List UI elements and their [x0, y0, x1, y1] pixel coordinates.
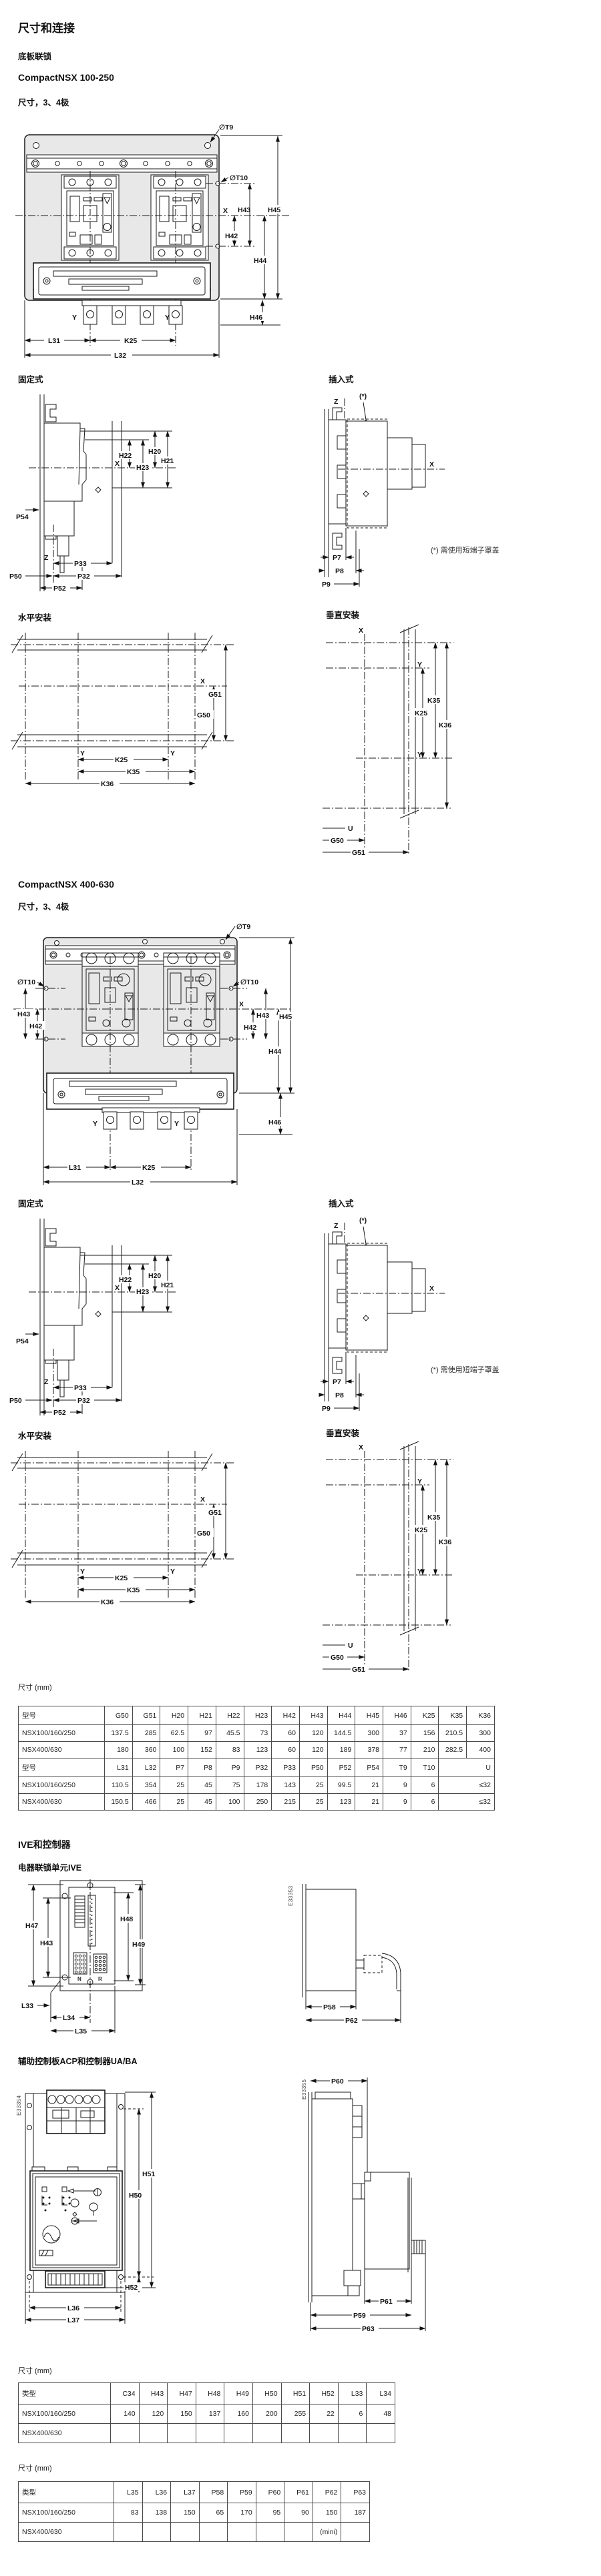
- table-cell: 65: [199, 2503, 228, 2523]
- axis-label-x: X: [359, 627, 363, 635]
- table-cell: NSX400/630: [19, 2424, 111, 2443]
- dim-label-u: U: [348, 825, 353, 833]
- dim-label-k25: K25: [115, 756, 128, 764]
- dim-label-p33: P33: [74, 1384, 87, 1392]
- interlock-plate: [33, 263, 210, 299]
- table-cell: [281, 2424, 310, 2443]
- axis-label-y-bottom: Y: [417, 751, 422, 759]
- dim-label-k25: K25: [115, 1574, 128, 1582]
- table-cell: [171, 2523, 200, 2542]
- table-cell: 99.5: [327, 1777, 355, 1794]
- table-cell: 62.5: [160, 1725, 188, 1742]
- dim-label-h43: H43: [40, 1939, 53, 1947]
- figure-nsx400-plugin-side-view: Z (*) X P7 P8 P9: [319, 1213, 601, 1420]
- dim-label-k35: K35: [427, 697, 440, 705]
- table-header-cell: H20: [160, 1706, 188, 1725]
- note-marker-star: (*): [359, 1217, 367, 1225]
- dim-label-g50: G50: [331, 1654, 344, 1662]
- dim-label-h43: H43: [238, 206, 250, 214]
- table-cell: 6: [411, 1777, 439, 1794]
- poles-label-2: 尺寸，3、4极: [18, 900, 69, 912]
- table-row: NSX100/160/250110.53542545751781432599.5…: [19, 1777, 495, 1794]
- table-cell: [341, 2523, 370, 2542]
- table-cell: 210.5: [439, 1725, 467, 1742]
- table-header-cell: H45: [355, 1706, 383, 1725]
- table-header-cell: P62: [313, 2482, 341, 2503]
- dim-label-h51: H51: [142, 2170, 155, 2178]
- axis-label-x: X: [115, 1284, 120, 1292]
- dim-label-h45: H45: [279, 1013, 292, 1021]
- ive-section-title: IVE和控制器: [18, 1838, 71, 1851]
- table-cell: 120: [139, 2404, 168, 2424]
- table-cell: 140: [111, 2404, 140, 2424]
- fixed-type-label-2: 固定式: [18, 1197, 43, 1209]
- table-cell: 110.5: [105, 1777, 133, 1794]
- table-cell: 37: [383, 1725, 411, 1742]
- dim-label-p32: P32: [77, 573, 90, 581]
- table-cell: ≤32: [439, 1777, 495, 1794]
- figure-horizontal-mounting-2: X G51 G50 Y Y K25 K35 K36: [5, 1447, 286, 1611]
- dim-label-t10-right: ∅T10: [240, 978, 258, 986]
- dim-label-p32: P32: [77, 1397, 90, 1405]
- axis-label-y-top: Y: [417, 661, 422, 669]
- table-row: NSX100/160/25083138150651709590150187: [19, 2503, 370, 2523]
- axis-label-x: X: [223, 207, 228, 215]
- table-header-cell: P52: [327, 1758, 355, 1777]
- table-header-cell: P33: [272, 1758, 300, 1777]
- axis-label-y-bottom: Y: [417, 1568, 422, 1576]
- figure-vertical-mounting-2: X Y Y K35 K25 K36 U G50 G51: [323, 1436, 476, 1676]
- table-cell: [142, 2523, 171, 2542]
- table-cell: 25: [160, 1794, 188, 1811]
- table-cell: [228, 2523, 256, 2542]
- dim-label-p58: P58: [323, 2003, 336, 2011]
- dim-label-g51: G51: [352, 849, 365, 857]
- table-cell: [367, 2424, 395, 2443]
- table-header-cell: H43: [299, 1706, 327, 1725]
- table-cell: 25: [160, 1777, 188, 1794]
- table-cell: 250: [244, 1794, 272, 1811]
- table-cell: 100: [160, 1742, 188, 1758]
- table-cell: 6: [411, 1794, 439, 1811]
- dim-label-p9: P9: [322, 581, 331, 589]
- figure-horizontal-mounting-1: X G51 G50 Y Y K25 K35 K36: [5, 629, 286, 793]
- table-cell: 360: [132, 1742, 160, 1758]
- table-cell: [338, 2424, 367, 2443]
- dim-label-k25: K25: [415, 1526, 427, 1534]
- table-header-cell: P8: [188, 1758, 216, 1777]
- dim-label-h50: H50: [129, 2192, 142, 2200]
- table-cell: 137: [196, 2404, 224, 2424]
- axis-label-x: X: [359, 1443, 363, 1452]
- dim-label-t9: ∅T9: [219, 123, 233, 131]
- table-header-cell: L32: [132, 1758, 160, 1777]
- table-row: NSX400/630(mini): [19, 2523, 370, 2542]
- dim-label-h52: H52: [125, 2284, 138, 2292]
- table-cell: NSX400/630: [19, 2523, 114, 2542]
- table-cell: 178: [244, 1777, 272, 1794]
- table-header-cell: T9: [383, 1758, 411, 1777]
- dim-label-h21: H21: [161, 1281, 174, 1289]
- table-cell: 73: [244, 1725, 272, 1742]
- dim-label-u: U: [348, 1642, 353, 1650]
- table-header-cell: K36: [467, 1706, 495, 1725]
- table-cell: 21: [355, 1777, 383, 1794]
- dim-label-h45: H45: [268, 206, 280, 214]
- dim-label-k35: K35: [127, 1586, 140, 1594]
- table-cell: 282.5: [439, 1742, 467, 1758]
- table-cell: 9: [383, 1794, 411, 1811]
- dim-label-k36: K36: [439, 1538, 451, 1546]
- table-cell: 200: [252, 2404, 281, 2424]
- dim-label-l31: L31: [48, 337, 60, 345]
- figure-ref-ive: E33353: [288, 1885, 294, 1906]
- table-cell: (mini): [313, 2523, 341, 2542]
- dim-label-g50: G50: [197, 711, 210, 719]
- dim-label-h48: H48: [120, 1915, 133, 1923]
- table-cell: 100: [216, 1794, 244, 1811]
- axis-label-z: Z: [44, 1378, 49, 1386]
- fixed-type-label-1: 固定式: [18, 372, 43, 385]
- plugin-note-2: (*) 需使用短端子罩盖: [431, 1364, 499, 1375]
- table-cell: NSX400/630: [19, 1742, 105, 1758]
- table-header-cell: L31: [105, 1758, 133, 1777]
- axis-label-y-top: Y: [417, 1478, 422, 1486]
- plugin-type-label-1: 插入式: [329, 372, 354, 385]
- table-row: NSX100/160/25014012015013716020025522648: [19, 2404, 395, 2424]
- dim-label-p60: P60: [331, 2077, 344, 2085]
- dim-label-t10: ∅T10: [230, 174, 248, 182]
- figure-nsx100-plugin-side-view: Z (*) X P7 P8 P9: [319, 389, 601, 596]
- table-cell: 25: [299, 1777, 327, 1794]
- dim-label-h46: H46: [250, 314, 262, 322]
- table-header-cell: K25: [411, 1706, 439, 1725]
- table-cell: 75: [216, 1777, 244, 1794]
- dim-label-g51: G51: [208, 691, 222, 699]
- table-cell: [114, 2523, 143, 2542]
- table-cell: 150: [313, 2503, 341, 2523]
- table-header-row: 类型L35L36L37P58P59P60P61P62P63: [19, 2482, 370, 2503]
- dim-label-p9: P9: [322, 1405, 331, 1413]
- dim-label-p8: P8: [335, 1391, 344, 1399]
- table-header-cell: P32: [244, 1758, 272, 1777]
- dim-label-h43-right: H43: [256, 1012, 269, 1020]
- dim-label-k25: K25: [415, 709, 427, 717]
- table-header-cell: H43: [139, 2383, 168, 2404]
- table-cell: [196, 2424, 224, 2443]
- figure-acp-side-view: P60 P61 P59 P63: [297, 2072, 444, 2339]
- table-cell: 150: [168, 2404, 196, 2424]
- dim-label-h43-left: H43: [17, 1010, 30, 1018]
- table-cell: 156: [411, 1725, 439, 1742]
- table-header-cell: H23: [244, 1706, 272, 1725]
- table-header-cell: P9: [216, 1758, 244, 1777]
- axis-label-y-left: Y: [93, 1120, 97, 1128]
- axis-label-x: X: [115, 460, 120, 468]
- table-header-cell: H47: [168, 2383, 196, 2404]
- dim-label-h49: H49: [132, 1941, 145, 1949]
- figure-nsx100-fixed-side-view: H22 H20 H23 H21 X P54 Z P33 P32 P50 P52: [5, 391, 192, 599]
- figure-ive-side-view: P58 P62: [297, 1884, 417, 2051]
- table-cell: 354: [132, 1777, 160, 1794]
- table-header-cell: H48: [196, 2383, 224, 2404]
- dim-label-p54: P54: [16, 513, 29, 521]
- table-header-cell: L35: [114, 2482, 143, 2503]
- axis-label-x: X: [429, 1285, 434, 1293]
- table-cell: 95: [256, 2503, 284, 2523]
- dim-label-k35: K35: [427, 1514, 440, 1522]
- dimension-table-acp-1: 类型C34H43H47H48H49H50H51H52L33L34NSX100/1…: [18, 2382, 395, 2443]
- table-cell: 45: [188, 1794, 216, 1811]
- table-header-cell: P7: [160, 1758, 188, 1777]
- dim-label-h23: H23: [136, 1288, 149, 1296]
- dim-label-k36: K36: [101, 1598, 114, 1606]
- table-cell: 83: [114, 2503, 143, 2523]
- table-cell: 138: [142, 2503, 171, 2523]
- table-cell: 180: [105, 1742, 133, 1758]
- table-header-cell: C34: [111, 2383, 140, 2404]
- dim-label-g51: G51: [208, 1509, 222, 1517]
- dim-label-h42: H42: [225, 232, 238, 240]
- table-cell: [224, 2424, 253, 2443]
- table-cell: NSX400/630: [19, 1794, 105, 1811]
- table-header-cell: P50: [299, 1758, 327, 1777]
- axis-label-x: X: [200, 1496, 205, 1504]
- table-cell: [284, 2523, 313, 2542]
- dim-label-k35: K35: [127, 768, 140, 776]
- table-cell: [111, 2424, 140, 2443]
- table-cell: 77: [383, 1742, 411, 1758]
- acp-table1-caption: 尺寸 (mm): [18, 2365, 52, 2376]
- table-cell: [310, 2424, 339, 2443]
- acp-section-title: 辅助控制板ACP和控制器UA/BA: [18, 2054, 137, 2067]
- poles-label-1: 尺寸，3、4极: [18, 95, 69, 108]
- table-cell: 160: [224, 2404, 253, 2424]
- dim-label-p8: P8: [335, 567, 344, 575]
- product-title-nsx100: CompactNSX 100-250: [18, 72, 114, 83]
- dim-label-p52: P52: [53, 585, 66, 593]
- table-cell: 48: [367, 2404, 395, 2424]
- table-header-cell: P58: [199, 2482, 228, 2503]
- dim-label-k25: K25: [142, 1164, 155, 1172]
- axis-label-y-right: Y: [174, 1120, 179, 1128]
- table-cell: 45: [188, 1777, 216, 1794]
- table-header-cell: G51: [132, 1706, 160, 1725]
- table-cell: 215: [272, 1794, 300, 1811]
- dim-label-g50: G50: [331, 837, 344, 845]
- table-cell: 123: [244, 1742, 272, 1758]
- table-header-cell: L36: [142, 2482, 171, 2503]
- connector-label-n: N: [77, 1976, 81, 1982]
- dim-label-l34: L34: [63, 2014, 75, 2022]
- table-header-cell: 型号: [19, 1758, 105, 1777]
- dim-label-l31: L31: [69, 1164, 81, 1172]
- table-header-cell: T10: [411, 1758, 439, 1777]
- dim-label-p7: P7: [333, 554, 341, 562]
- table-cell: 255: [281, 2404, 310, 2424]
- table-cell: 9: [383, 1777, 411, 1794]
- table-header-cell: L34: [367, 2383, 395, 2404]
- figure-acp-front-view: H51 H50 H52 L36 L37: [10, 2082, 197, 2336]
- table-header-cell: 类型: [19, 2383, 111, 2404]
- axis-label-y-left: Y: [80, 749, 85, 757]
- axis-label-z: Z: [334, 398, 339, 406]
- dim-label-k36: K36: [439, 721, 451, 729]
- table-cell: [256, 2523, 284, 2542]
- table-cell: 6: [338, 2404, 367, 2424]
- table-header-cell: 型号: [19, 1706, 105, 1725]
- table-cell: 466: [132, 1794, 160, 1811]
- table-cell: 120: [299, 1725, 327, 1742]
- table-header-cell: H46: [383, 1706, 411, 1725]
- dim-label-l33: L33: [21, 2002, 33, 2010]
- table-header-cell: P63: [341, 2482, 370, 2503]
- plugin-type-label-2: 插入式: [329, 1197, 354, 1209]
- dim-label-h44: H44: [254, 257, 266, 265]
- table-row: NSX100/160/250137.528562.59745.573601201…: [19, 1725, 495, 1742]
- dim-label-h42-right: H42: [244, 1024, 256, 1032]
- dim-label-p50: P50: [9, 1397, 22, 1405]
- table-cell: 150.5: [105, 1794, 133, 1811]
- figure-vertical-mounting-1: X Y Y K35 K25 K36 U G50 G51: [323, 619, 476, 860]
- dim-label-t10-left: ∅T10: [17, 978, 35, 986]
- dim-label-l36: L36: [67, 2304, 79, 2312]
- table-cell: 152: [188, 1742, 216, 1758]
- dim-label-k36: K36: [101, 780, 114, 788]
- table-cell: 21: [355, 1794, 383, 1811]
- page-title: 尺寸和连接: [18, 19, 75, 35]
- dim-table-caption: 尺寸 (mm): [18, 1682, 52, 1692]
- table-header-cell: L33: [338, 2383, 367, 2404]
- connector-label-r: R: [98, 1976, 102, 1982]
- table-cell: 400: [467, 1742, 495, 1758]
- table-cell: 143: [272, 1777, 300, 1794]
- table-cell: 97: [188, 1725, 216, 1742]
- dim-label-k25: K25: [124, 337, 137, 345]
- table-header-row: 类型C34H43H47H48H49H50H51H52L33L34: [19, 2383, 395, 2404]
- axis-label-y-right: Y: [165, 314, 170, 322]
- table-header-row: 型号L31L32P7P8P9P32P33P50P52P54T9T10U: [19, 1758, 495, 1777]
- table-header-cell: P61: [284, 2482, 313, 2503]
- table-cell: 170: [228, 2503, 256, 2523]
- axis-label-x: X: [239, 1000, 244, 1008]
- acp-table2-caption: 尺寸 (mm): [18, 2463, 52, 2473]
- horizontal-mount-label-2: 水平安装: [18, 1429, 51, 1441]
- axis-label-y-right: Y: [170, 749, 175, 757]
- dim-label-p33: P33: [74, 560, 87, 568]
- dim-label-h44: H44: [268, 1048, 281, 1056]
- table-header-cell: H49: [224, 2383, 253, 2404]
- table-header-cell: H52: [310, 2383, 339, 2404]
- axis-label-y-left: Y: [80, 1568, 85, 1576]
- table-header-cell: H21: [188, 1706, 216, 1725]
- table-row: NSX400/630: [19, 2424, 395, 2443]
- horizontal-mount-label-1: 水平安装: [18, 611, 51, 623]
- table-cell: 300: [355, 1725, 383, 1742]
- dim-label-h46: H46: [268, 1118, 281, 1126]
- axis-label-x: X: [200, 677, 205, 685]
- table-cell: 22: [310, 2404, 339, 2424]
- table-cell: 210: [411, 1742, 439, 1758]
- table-cell: NSX100/160/250: [19, 1725, 105, 1742]
- figure-ive-front-view: N R H47 H43 H48 H49 L33 L34 L35: [13, 1879, 167, 2053]
- dim-label-h21: H21: [161, 457, 174, 465]
- table-cell: [252, 2424, 281, 2443]
- table-cell: 285: [132, 1725, 160, 1742]
- dim-label-h22: H22: [119, 452, 132, 460]
- axis-label-z: Z: [44, 554, 49, 562]
- section-baseplate-interlock: 底板联锁: [18, 49, 51, 62]
- dim-label-p63: P63: [362, 2325, 375, 2333]
- dim-label-h42-left: H42: [29, 1022, 42, 1030]
- note-marker-star: (*): [359, 392, 367, 400]
- dim-label-h47: H47: [25, 1922, 38, 1930]
- dimension-table-main: 型号G50G51H20H21H22H23H42H43H44H45H46K25K3…: [18, 1706, 495, 1811]
- table-header-row: 型号G50G51H20H21H22H23H42H43H44H45H46K25K3…: [19, 1706, 495, 1725]
- table-header-cell: H44: [327, 1706, 355, 1725]
- table-header-cell: G50: [105, 1706, 133, 1725]
- document-page: 尺寸和连接 底板联锁 CompactNSX 100-250 尺寸，3、4极: [0, 0, 601, 2576]
- table-cell: 137.5: [105, 1725, 133, 1742]
- table-cell: NSX100/160/250: [19, 2404, 111, 2424]
- table-cell: 150: [171, 2503, 200, 2523]
- dim-label-g51: G51: [352, 1666, 365, 1674]
- table-header-cell: 类型: [19, 2482, 114, 2503]
- dimension-table-acp-2: 类型L35L36L37P58P59P60P61P62P63NSX100/160/…: [18, 2481, 370, 2542]
- table-cell: [168, 2424, 196, 2443]
- table-cell: ≤32: [439, 1794, 495, 1811]
- dim-label-p50: P50: [9, 573, 22, 581]
- table-cell: [199, 2523, 228, 2542]
- table-cell: 378: [355, 1742, 383, 1758]
- table-cell: NSX100/160/250: [19, 1777, 105, 1794]
- dim-label-p52: P52: [53, 1409, 66, 1417]
- axis-label-y-left: Y: [72, 314, 77, 322]
- dim-label-p59: P59: [353, 2312, 366, 2320]
- table-header-cell: H51: [281, 2383, 310, 2404]
- breaker-right: [151, 175, 208, 260]
- table-cell: [139, 2424, 168, 2443]
- axis-label-y-right: Y: [170, 1568, 175, 1576]
- axis-label-z: Z: [334, 1222, 339, 1230]
- table-header-cell: U: [439, 1758, 495, 1777]
- dim-label-h23: H23: [136, 464, 149, 472]
- table-header-cell: H42: [272, 1706, 300, 1725]
- dim-label-l37: L37: [67, 2316, 79, 2324]
- table-cell: 120: [299, 1742, 327, 1758]
- table-cell: 123: [327, 1794, 355, 1811]
- table-header-cell: K35: [439, 1706, 467, 1725]
- dim-label-l32: L32: [132, 1179, 144, 1187]
- table-cell: 60: [272, 1742, 300, 1758]
- figure-nsx400-fixed-side-view: H22 H20 H23 H21 X P54 Z P33 P32 P50 P52: [5, 1215, 192, 1423]
- table-cell: 25: [299, 1794, 327, 1811]
- dim-label-g50: G50: [197, 1530, 210, 1538]
- dim-label-p7: P7: [333, 1378, 341, 1386]
- table-cell: 144.5: [327, 1725, 355, 1742]
- table-cell: 189: [327, 1742, 355, 1758]
- dim-label-h22: H22: [119, 1276, 132, 1284]
- table-cell: 90: [284, 2503, 313, 2523]
- ive-unit-title: 电器联锁单元IVE: [18, 1861, 81, 1873]
- table-cell: 60: [272, 1725, 300, 1742]
- table-cell: NSX100/160/250: [19, 2503, 114, 2523]
- table-header-cell: P54: [355, 1758, 383, 1777]
- dim-label-h20: H20: [148, 1272, 161, 1280]
- table-cell: 187: [341, 2503, 370, 2523]
- axis-label-x: X: [429, 460, 434, 468]
- dim-label-h20: H20: [148, 448, 161, 456]
